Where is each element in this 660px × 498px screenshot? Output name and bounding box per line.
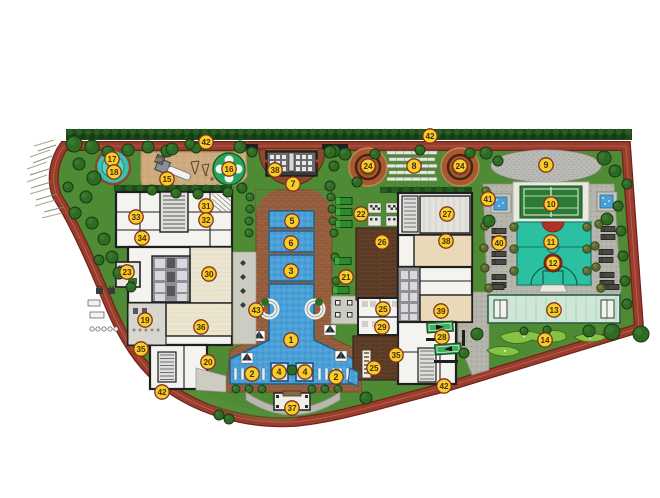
svg-text:31: 31 xyxy=(201,202,211,211)
svg-text:8: 8 xyxy=(411,161,416,171)
svg-text:42: 42 xyxy=(425,132,435,141)
svg-text:35: 35 xyxy=(136,345,146,354)
svg-text:25: 25 xyxy=(378,305,388,314)
svg-text:4: 4 xyxy=(302,367,307,377)
svg-text:34: 34 xyxy=(137,234,147,243)
svg-text:41: 41 xyxy=(483,195,493,204)
svg-text:6: 6 xyxy=(288,238,293,248)
svg-text:30: 30 xyxy=(204,270,214,279)
svg-text:26: 26 xyxy=(377,238,387,247)
svg-text:36: 36 xyxy=(196,323,206,332)
svg-text:38: 38 xyxy=(270,166,280,175)
svg-text:24: 24 xyxy=(455,162,465,171)
svg-text:24: 24 xyxy=(363,162,373,171)
svg-text:32: 32 xyxy=(201,216,211,225)
svg-text:3: 3 xyxy=(288,266,293,276)
svg-text:35: 35 xyxy=(391,351,401,360)
svg-text:18: 18 xyxy=(109,168,119,177)
svg-text:42: 42 xyxy=(439,382,449,391)
svg-text:17: 17 xyxy=(107,155,117,164)
svg-text:42: 42 xyxy=(157,388,167,397)
svg-text:40: 40 xyxy=(494,239,504,248)
svg-text:37: 37 xyxy=(287,404,297,413)
svg-text:1: 1 xyxy=(288,335,293,345)
svg-text:9: 9 xyxy=(543,160,548,170)
svg-text:39: 39 xyxy=(436,307,446,316)
svg-text:28: 28 xyxy=(437,333,447,342)
svg-text:43: 43 xyxy=(251,306,261,315)
svg-text:16: 16 xyxy=(224,165,234,174)
svg-text:25: 25 xyxy=(369,364,379,373)
svg-text:13: 13 xyxy=(549,306,559,315)
svg-text:27: 27 xyxy=(442,210,452,219)
svg-text:11: 11 xyxy=(547,238,556,247)
svg-text:15: 15 xyxy=(162,175,172,184)
svg-text:12: 12 xyxy=(548,259,558,268)
svg-text:7: 7 xyxy=(290,179,295,189)
svg-text:5: 5 xyxy=(289,216,294,226)
svg-text:4: 4 xyxy=(276,367,281,377)
svg-text:23: 23 xyxy=(122,268,132,277)
svg-text:33: 33 xyxy=(131,213,141,222)
svg-text:14: 14 xyxy=(540,336,550,345)
svg-text:10: 10 xyxy=(546,200,556,209)
svg-text:2: 2 xyxy=(333,372,338,382)
svg-text:19: 19 xyxy=(140,316,150,325)
svg-text:21: 21 xyxy=(341,273,351,282)
svg-text:38: 38 xyxy=(441,237,451,246)
svg-text:22: 22 xyxy=(356,210,366,219)
svg-text:29: 29 xyxy=(377,323,387,332)
svg-text:20: 20 xyxy=(203,358,213,367)
svg-text:2: 2 xyxy=(249,369,254,379)
svg-text:42: 42 xyxy=(201,138,211,147)
